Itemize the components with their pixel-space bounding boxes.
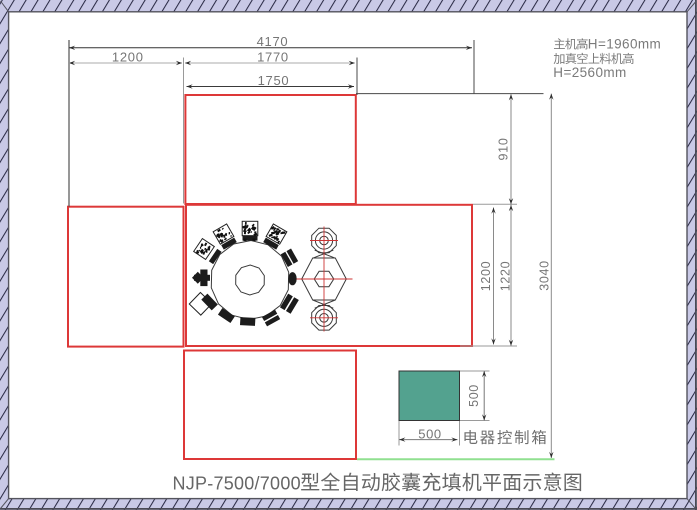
svg-text:1750: 1750 xyxy=(258,73,290,88)
svg-text:1770: 1770 xyxy=(257,50,289,65)
svg-text:910: 910 xyxy=(497,138,511,161)
svg-text:NJP-7500/7000: NJP-7500/7000 xyxy=(173,474,301,494)
svg-text:3040: 3040 xyxy=(538,260,552,291)
svg-text:500: 500 xyxy=(418,427,442,442)
svg-text:1220: 1220 xyxy=(499,261,513,292)
svg-text:H=2560mm: H=2560mm xyxy=(553,65,626,80)
svg-text:H=1960mm: H=1960mm xyxy=(588,37,661,52)
svg-text:1200: 1200 xyxy=(479,261,493,292)
svg-text:500: 500 xyxy=(467,384,481,407)
svg-text:4170: 4170 xyxy=(257,34,289,49)
svg-text:1200: 1200 xyxy=(112,50,144,65)
